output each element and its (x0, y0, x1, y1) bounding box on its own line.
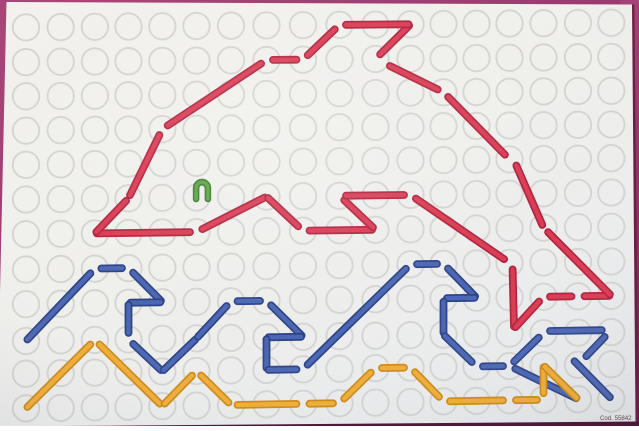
svg-text:Cod. 55842: Cod. 55842 (600, 415, 632, 422)
